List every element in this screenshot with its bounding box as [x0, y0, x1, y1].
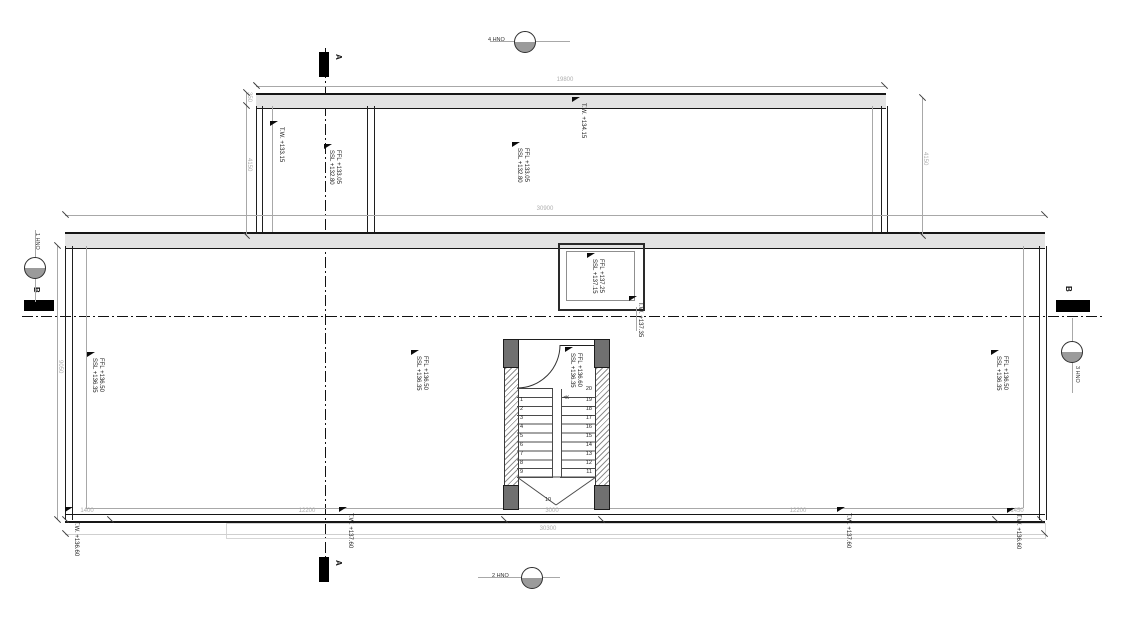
section-marker-a-bottom [319, 557, 329, 582]
grid-bubble-left [24, 257, 46, 279]
level-flag [87, 352, 95, 357]
level-ssl: SSL +132.80 [516, 148, 523, 183]
dim-line-main-left [57, 246, 58, 520]
grid-bubble-bottom [521, 567, 543, 589]
dim-bottom-total: 30300 [528, 526, 568, 532]
grid-bubble-top-label: 4 HNO [488, 37, 505, 43]
level-upper-ffl-ssl-left: FFL +133.05 SSL +132.80 [328, 150, 341, 185]
stair-column-bottom-right [594, 485, 610, 510]
main-wall-left-inner [86, 246, 87, 508]
section-label-b-right: B [1064, 286, 1073, 292]
dim-bottom-segment: 3000 [536, 508, 568, 514]
level-ssl: SSL +136.35 [415, 356, 422, 391]
stair-stringer [552, 389, 562, 477]
stair-column-top-right [594, 339, 610, 368]
level-ffl: FFL +133.05 [335, 150, 342, 185]
section-marker-b-left [24, 300, 54, 311]
level-upper-parapet-left: T.W. +133.15 [278, 127, 285, 162]
level-parapet-corner-right: T.W. +136.60 [1015, 514, 1022, 549]
level-ssl: SSL +136.35 [569, 353, 576, 388]
stair-landing-break-lines [517, 477, 596, 506]
dim-line-upper-right [922, 98, 923, 236]
dim-bottom-segment: 12200 [782, 508, 814, 514]
grid-line-bottom [478, 577, 560, 578]
dim-mid-width: 30900 [525, 206, 565, 212]
level-flag [270, 121, 278, 126]
level-flag [512, 142, 520, 147]
level-stair: FFL +136.60 SSL +136.35 [569, 353, 582, 388]
stair-top-wall-line [560, 345, 595, 346]
main-wall-left [65, 246, 73, 520]
level-flag [991, 350, 999, 355]
stair-step-number: 12 [578, 459, 592, 468]
section-marker-b-right [1056, 300, 1090, 312]
stair-step-number: 4 [520, 423, 523, 432]
level-ffl: FFL +133.05 [523, 148, 530, 183]
level-flag [629, 296, 637, 301]
level-flag [565, 347, 573, 352]
section-line-b [22, 316, 1104, 317]
level-skylight-ffl-ssl: FFL +137.25 SSL +137.15 [591, 259, 604, 294]
stair-step-number: 17 [578, 414, 592, 423]
section-label-b-left: B [32, 287, 41, 293]
upper-wall-left [256, 106, 263, 237]
level-ssl: SSL +136.35 [91, 358, 98, 393]
main-wall-bottom [65, 514, 1045, 523]
stair-door-swing-arc [517, 345, 560, 388]
stair-step-number: 19 [578, 396, 592, 405]
section-label-a-top: A [334, 54, 343, 60]
upper-wall-divider [367, 106, 375, 232]
stair-step-number: 5 [520, 432, 523, 441]
level-ffl: FFL +136.60 [576, 353, 583, 388]
level-flag [411, 350, 419, 355]
level-ssl: SSL +137.15 [591, 259, 598, 294]
level-upper-ffl-ssl-mid: FFL +133.05 SSL +132.80 [516, 148, 529, 183]
section-marker-a-top [319, 52, 329, 77]
dim-bottom-segment: 1400 [76, 508, 98, 514]
main-parapet-band-top [65, 232, 1045, 249]
level-flag [339, 507, 347, 512]
main-wall-right [1039, 246, 1047, 520]
level-flag [572, 97, 580, 102]
stair-step-number: 13 [578, 450, 592, 459]
level-skylight-parapet: T.W. +137.35 [637, 302, 644, 337]
level-upper-parapet-mid: T.W. +134.15 [580, 103, 587, 138]
level-ffl: FFL +136.50 [98, 358, 105, 393]
level-parapet-inner-right: T.W. +137.60 [845, 513, 852, 548]
level-ffl: FFL +137.25 [598, 259, 605, 294]
stair-step-number: 16 [578, 423, 592, 432]
level-main-left: FFL +136.50 SSL +136.35 [91, 358, 104, 393]
stair-step-number: 15 [578, 432, 592, 441]
stair-step-number: 18 [578, 405, 592, 414]
dim-line-mid-width [65, 215, 1045, 216]
level-flag [587, 253, 595, 258]
level-flag [1007, 508, 1015, 513]
level-ssl: SSL +132.80 [328, 150, 335, 185]
section-line-a [325, 48, 326, 582]
stair-step-number: 9 [520, 468, 523, 477]
floor-plan-canvas: A A B B 4 HNO 2 HNO 1 HNO 3 HNO [0, 0, 1125, 617]
upper-wall-right [881, 106, 888, 237]
dim-upper-left: 4150 [246, 158, 252, 171]
grid-bubble-left-label: 1 HNO [34, 233, 40, 250]
stair-step-number: 8 [520, 459, 523, 468]
main-wall-right-inner [1023, 246, 1024, 508]
grid-bubble-right [1061, 341, 1083, 363]
grid-bubble-right-label: 3 HNO [1074, 366, 1080, 383]
dim-line-bottom-total [65, 534, 1045, 535]
level-parapet-corner-left: T.W. +136.60 [73, 521, 80, 556]
level-parapet-inner-left: T.W. +137.60 [347, 513, 354, 548]
dim-main-left: 9050 [57, 360, 63, 373]
level-main-right: FFL +136.50 SSL +136.35 [995, 356, 1008, 391]
level-flag [65, 507, 73, 512]
grid-bubble-top [514, 31, 536, 53]
stair-step-number: 11 [578, 468, 592, 477]
stair-step-number: 6 [520, 441, 523, 450]
stair-direction-arrows-icon: ≪ [563, 394, 569, 402]
stair-step-number: 14 [578, 441, 592, 450]
dim-bottom-segment: 12200 [291, 508, 323, 514]
dim-line-top-width [256, 86, 885, 87]
stair-step-number: 2 [520, 405, 523, 414]
level-flag [837, 507, 845, 512]
level-ffl: FFL +136.50 [1002, 356, 1009, 391]
stair-step-number: 7 [520, 450, 523, 459]
upper-parapet-band [256, 93, 886, 109]
section-label-a-bottom: A [334, 560, 343, 566]
stair-door-leaf-line [517, 388, 553, 389]
stair-step-number: 1 [520, 396, 523, 405]
dim-top-width: 19800 [545, 77, 585, 83]
stair-step-number: 3 [520, 414, 523, 423]
grid-bubble-bottom-label: 2 HNO [492, 573, 509, 579]
level-flag [324, 144, 332, 149]
dim-upper-right: 4150 [922, 152, 928, 165]
level-ssl: SSL +136.35 [995, 356, 1002, 391]
level-main-mid: FFL +136.50 SSL +136.35 [415, 356, 428, 391]
upper-wall-right-inner [872, 106, 873, 237]
level-ffl: FFL +136.50 [422, 356, 429, 391]
